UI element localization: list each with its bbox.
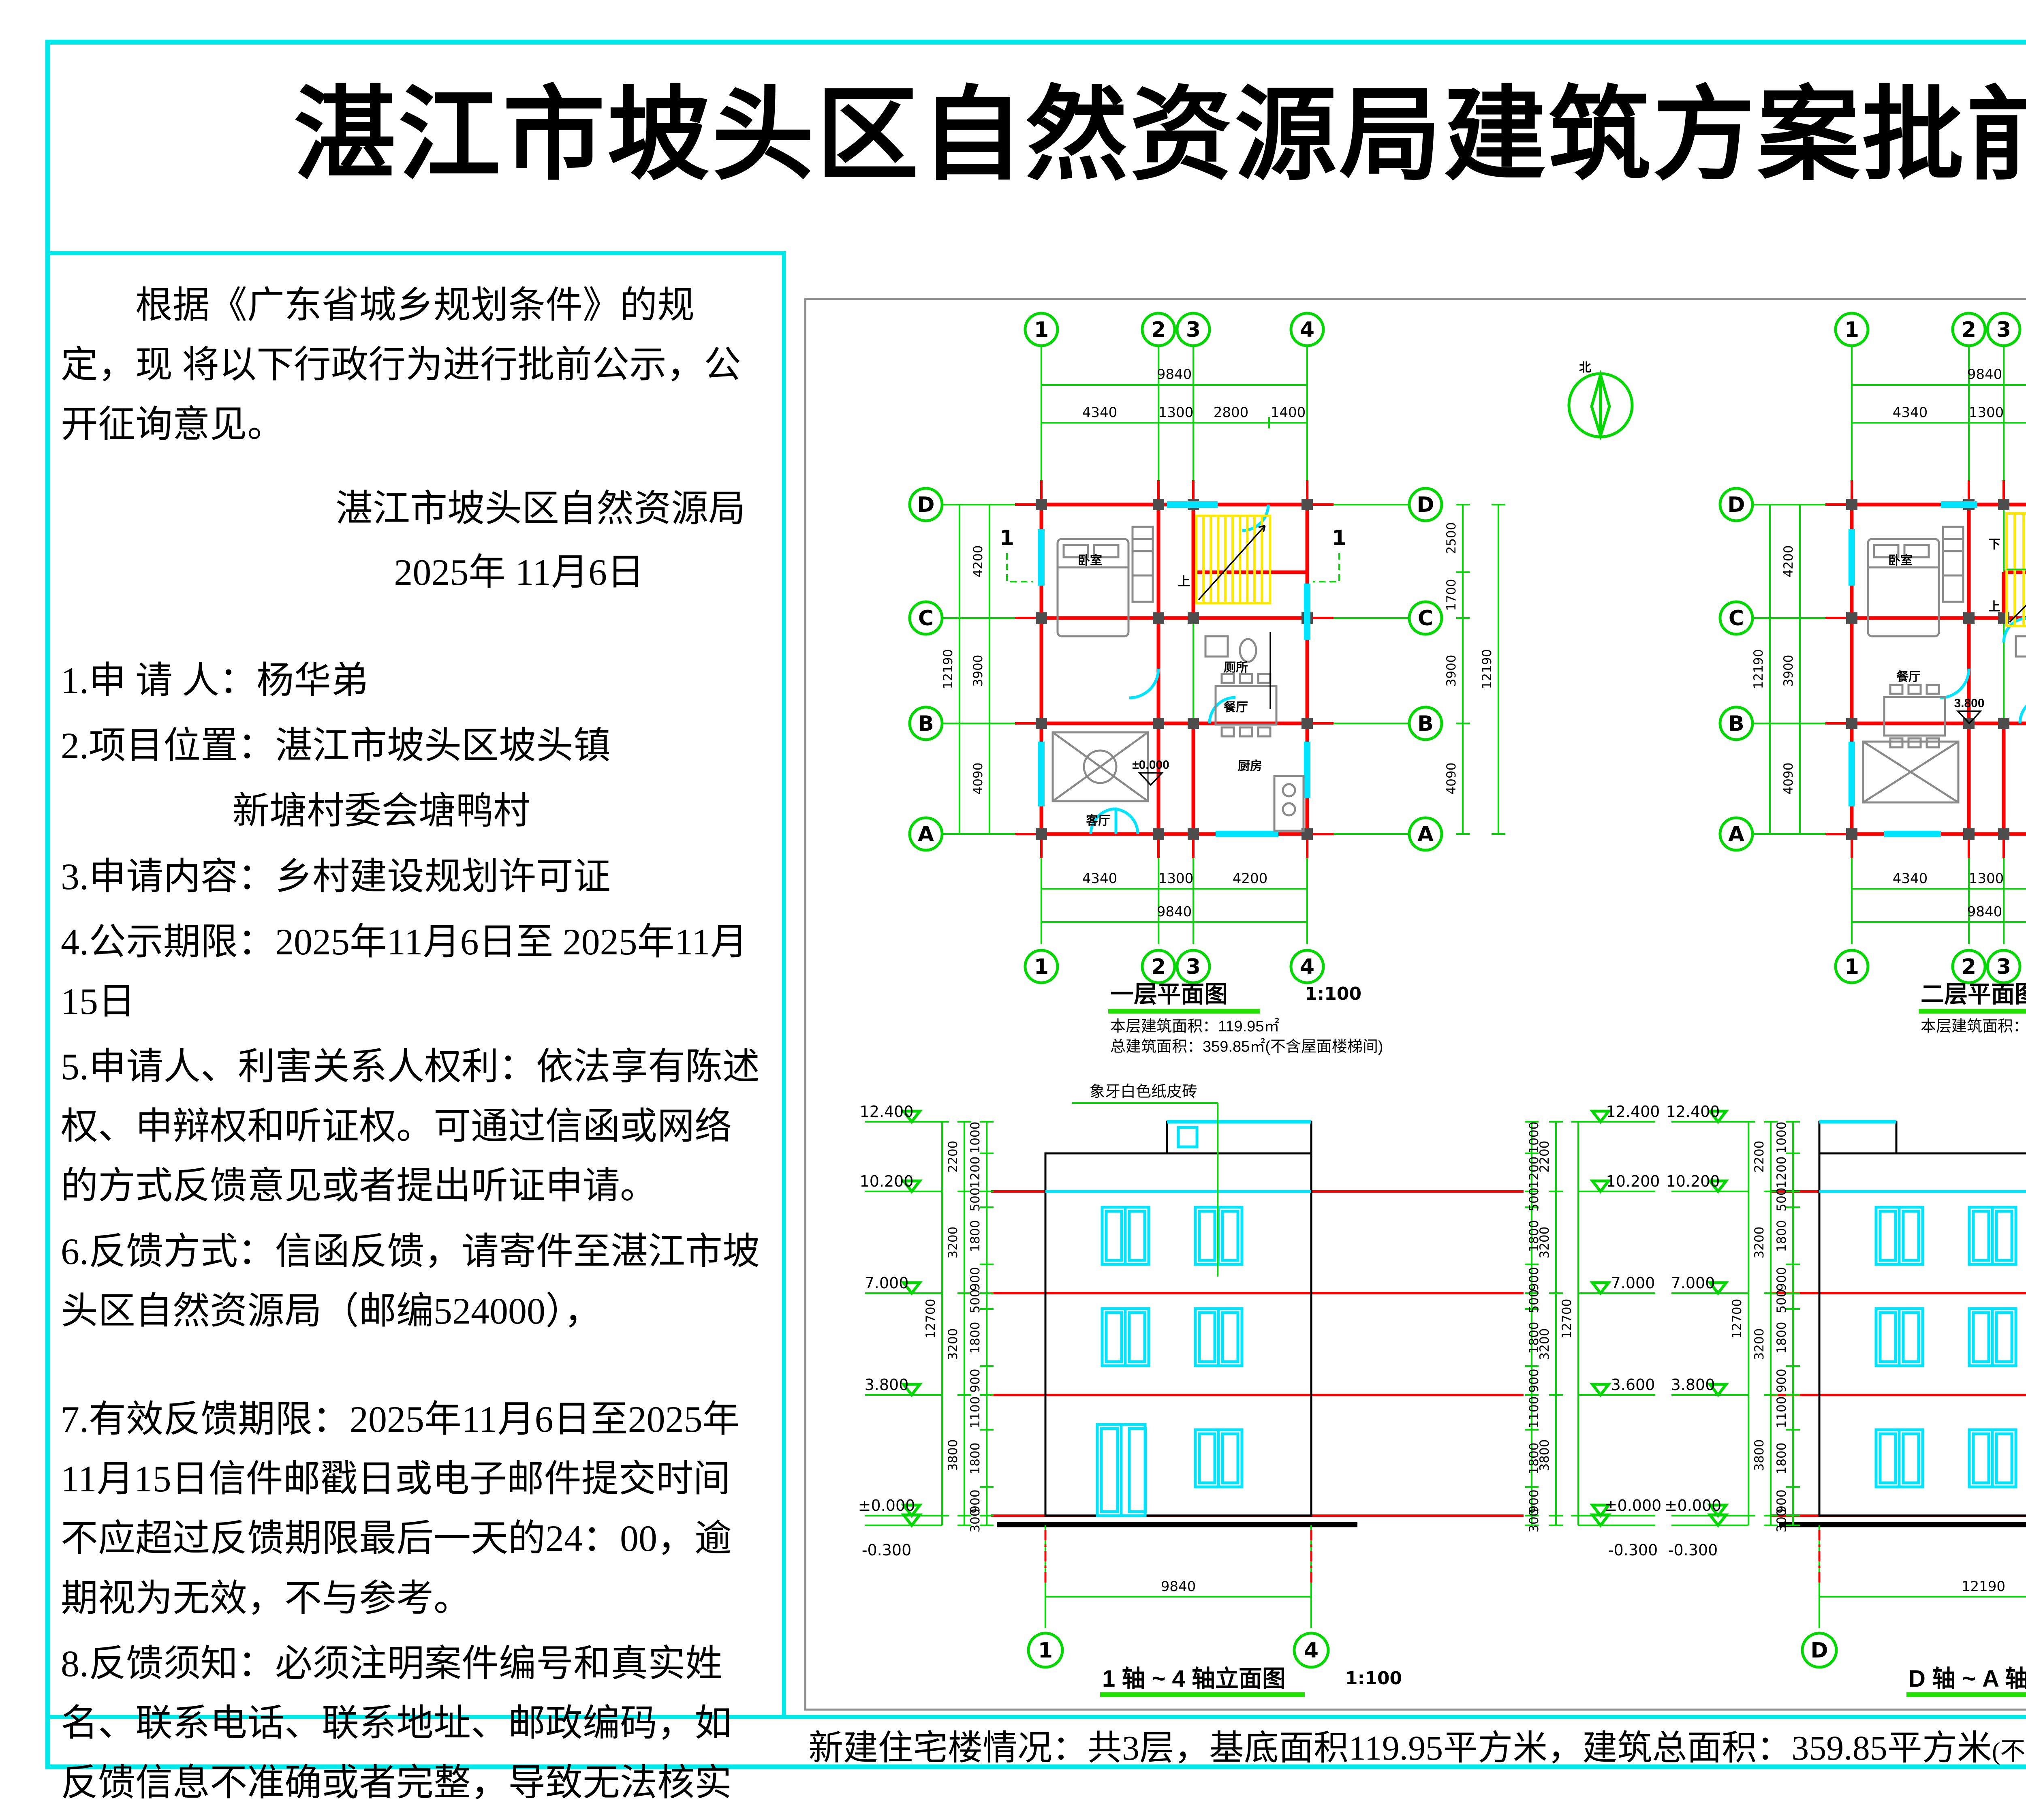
svg-text:3800: 3800 [1537,1439,1552,1471]
svg-text:-0.300: -0.300 [1668,1541,1718,1559]
svg-text:北: 北 [1579,361,1591,374]
floor-plan-2: 9840 4340 1300 4200 4340 1300 4200 9840 … [1641,302,2026,1056]
svg-text:上: 上 [1178,575,1190,588]
notice-item: 1.申 请 人：杨华弟 [61,651,766,710]
svg-text:±0.000: ±0.000 [1665,1497,1722,1514]
svg-text:2: 2 [1151,318,1166,342]
svg-text:B: B [918,712,934,736]
notice-item: 6.反馈方式：信函反馈，请寄件至湛江市坡头区自然资源局（邮编524000）， [61,1222,766,1341]
svg-text:12700: 12700 [923,1299,938,1339]
svg-text:900: 900 [1774,1267,1789,1291]
svg-text:12700: 12700 [1560,1299,1574,1339]
svg-text:A: A [1728,822,1744,847]
svg-text:D: D [1727,493,1745,517]
svg-text:1100: 1100 [1774,1397,1789,1429]
svg-text:厨房: 厨房 [1238,759,1262,773]
svg-text:3: 3 [1996,318,2011,342]
svg-text:9840: 9840 [1157,904,1192,920]
svg-text:4090: 4090 [1444,763,1459,795]
svg-text:3900: 3900 [1444,655,1459,687]
svg-text:C: C [1729,606,1744,631]
svg-text:12700: 12700 [1730,1299,1744,1339]
svg-text:1800: 1800 [1774,1443,1789,1475]
svg-text:B: B [1417,712,1434,736]
floor-plan-1: 9840 4340 1300 2800 1400 4340 1300 4200 … [831,302,1669,1056]
svg-text:500: 500 [1527,1289,1541,1313]
svg-text:4340: 4340 [1893,404,1928,421]
footer-text: 新建住宅楼情况：共3层，基底面积119.95平方米，建筑总面积：359.85平方… [808,1728,1992,1767]
svg-text:10.200: 10.200 [860,1172,914,1190]
svg-text:1800: 1800 [968,1322,983,1354]
svg-text:1300: 1300 [1969,870,2004,887]
svg-text:12190: 12190 [1751,649,1766,689]
svg-text:1200: 1200 [968,1157,983,1189]
svg-text:4200: 4200 [971,545,985,577]
svg-text:3: 3 [1186,955,1201,979]
footer-paren: (不含屋面楼梯间面积) [1992,1738,2026,1765]
svg-text:7.000: 7.000 [865,1274,909,1292]
svg-text:900: 900 [968,1267,983,1291]
plan1-note1: 本层建筑面积：119.95㎡ [1110,1018,1279,1035]
svg-text:1: 1 [1038,1638,1053,1663]
svg-text:4200: 4200 [1233,870,1268,887]
notice-paragraph: 根据《广东省城乡规划条件》的规定，现 将以下行政行为进行批前公示，公开征询意见。 [61,276,766,455]
elev2-caption: D 轴 ~ A 轴立面图 [1908,1666,2026,1692]
svg-text:1200: 1200 [1774,1157,1789,1189]
svg-text:3200: 3200 [946,1227,960,1259]
svg-text:4200: 4200 [1781,545,1796,577]
columns [1036,499,1313,840]
svg-text:3200: 3200 [1752,1328,1767,1360]
svg-text:300: 300 [1774,1508,1789,1532]
svg-text:A: A [1417,822,1434,847]
svg-text:±0.000: ±0.000 [1132,758,1169,772]
svg-text:10.200: 10.200 [1666,1172,1720,1190]
plan1-note2: 总建筑面积：359.85㎡(不含屋面楼梯间) [1110,1038,1383,1055]
svg-text:3900: 3900 [971,655,985,687]
svg-text:3800: 3800 [946,1439,960,1471]
svg-text:卧室: 卧室 [1888,554,1913,567]
svg-text:3: 3 [1186,318,1201,342]
svg-text:12190: 12190 [1962,1578,2005,1595]
svg-text:1: 1 [1844,318,1859,342]
plan2-note1: 本层建筑面积：119.95㎡ [1921,1018,2026,1035]
svg-text:12190: 12190 [941,649,955,689]
svg-text:上: 上 [1988,600,2000,614]
footer-bar: 新建住宅楼情况：共3层，基底面积119.95平方米，建筑总面积：359.85平方… [808,1719,2026,1770]
svg-text:3200: 3200 [1752,1227,1767,1259]
plan2-caption: 二层平面图 [1921,981,2026,1007]
svg-text:7.000: 7.000 [1611,1274,1655,1292]
facade-windows [1876,1207,2026,1487]
svg-text:7.000: 7.000 [1671,1274,1715,1292]
plan1-caption: 一层平面图 [1110,981,1228,1007]
svg-text:1: 1 [1034,955,1049,979]
svg-text:D: D [917,493,934,517]
svg-text:D: D [1810,1638,1828,1663]
svg-text:9840: 9840 [1967,904,2002,920]
title-divider [50,251,784,255]
svg-text:1: 1 [1844,955,1859,979]
bottom-dims [1802,1525,2026,1667]
svg-text:C: C [1418,606,1433,631]
notice-item: 2.项目位置：湛江市坡头区坡头镇 [61,716,766,776]
svg-text:1700: 1700 [1444,579,1459,611]
svg-text:客厅: 客厅 [1086,814,1110,828]
svg-text:3200: 3200 [1537,1227,1552,1259]
elevation-d-a: 象牙白色纸皮砖 12.400 10.200 7.000 3.800 ±0.000… [1649,1058,2026,1698]
svg-text:1800: 1800 [1774,1220,1789,1252]
svg-text:4: 4 [1300,955,1314,979]
svg-text:卧室: 卧室 [1078,554,1102,567]
svg-text:C: C [918,606,934,631]
north-compass-icon: 北 [1569,361,1632,437]
svg-text:4: 4 [1304,1638,1319,1663]
svg-text:12190: 12190 [1480,649,1494,689]
svg-text:2: 2 [1151,955,1166,979]
svg-text:500: 500 [1527,1187,1541,1211]
svg-text:12.400: 12.400 [860,1103,914,1121]
notice-item: 3.申请内容：乡村建设规划许可证 [61,847,766,907]
stair [2007,513,2026,626]
svg-text:1:100: 1:100 [1305,984,1361,1004]
notice-panel: 根据《广东省城乡规划条件》的规定，现 将以下行政行为进行批前公示，公开征询意见。… [61,276,766,1820]
finish-annotation: 象牙白色纸皮砖 [1090,1082,1197,1100]
svg-text:1100: 1100 [968,1397,983,1429]
svg-text:2200: 2200 [1537,1141,1552,1173]
svg-text:3900: 3900 [1781,655,1796,687]
svg-text:900: 900 [968,1369,983,1392]
svg-text:1800: 1800 [968,1443,983,1475]
svg-text:餐厅: 餐厅 [1224,701,1248,714]
facade-windows [1097,1207,1242,1516]
svg-text:1800: 1800 [1774,1322,1789,1354]
svg-text:2200: 2200 [946,1141,960,1173]
svg-text:300: 300 [1527,1508,1541,1532]
svg-text:A: A [918,822,934,847]
page-title: 湛江市坡头区自然资源局建筑方案批前公示 [0,52,2026,200]
notice-item: 7.有效反馈期限：2025年11月6日至2025年11月15日信件邮戳日或电子邮… [61,1390,766,1628]
svg-text:4090: 4090 [1781,763,1796,795]
svg-text:餐厅: 餐厅 [1896,670,1921,684]
svg-text:1: 1 [1332,526,1346,550]
svg-text:1000: 1000 [968,1122,983,1154]
svg-text:2500: 2500 [1444,522,1459,554]
svg-text:3200: 3200 [946,1328,960,1360]
svg-text:厕所: 厕所 [1224,661,1248,674]
svg-text:3800: 3800 [1752,1439,1767,1471]
svg-text:900: 900 [1527,1369,1541,1392]
svg-text:4340: 4340 [1082,404,1118,421]
svg-text:B: B [1728,712,1744,736]
svg-text:下: 下 [1988,538,2000,551]
svg-text:4: 4 [1300,318,1314,342]
notice-item: 8.反馈须知：必须注明案件编号和真实姓名、联系电话、联系地址、邮政编码，如反馈信… [61,1634,766,1820]
svg-text:3.800: 3.800 [865,1376,909,1394]
stair [1196,516,1270,603]
svg-text:4340: 4340 [1082,870,1118,887]
svg-text:1:100: 1:100 [1345,1668,1402,1689]
svg-text:500: 500 [1774,1289,1789,1313]
building-outline [997,1122,1357,1525]
svg-text:9840: 9840 [1967,366,2002,383]
svg-text:2: 2 [1962,318,1976,342]
svg-text:D: D [1417,493,1434,517]
bottom-dims [1028,1525,1328,1667]
public-notice-page: 湛江市坡头区自然资源局建筑方案批前公示 根据《广东省城乡规划条件》的规定，现 将… [0,0,2026,1820]
notice-date: 2025年 11月6日 [61,543,766,602]
svg-text:1300: 1300 [1969,404,2004,421]
svg-text:900: 900 [1774,1369,1789,1392]
elev1-caption: 1 轴 ~ 4 轴立面图 [1102,1666,1286,1692]
svg-text:12.400: 12.400 [1666,1103,1720,1121]
svg-text:1300: 1300 [1158,870,1194,887]
svg-text:300: 300 [968,1508,983,1532]
svg-text:500: 500 [968,1289,983,1313]
notice-item: 新塘村委会塘鸭村 [61,781,766,841]
svg-text:2: 2 [1962,955,1976,979]
svg-text:1400: 1400 [1271,404,1306,421]
svg-text:9840: 9840 [1157,366,1192,383]
svg-text:±0.000: ±0.000 [858,1497,915,1514]
svg-text:4090: 4090 [971,763,985,795]
svg-text:-0.300: -0.300 [862,1541,912,1559]
panel-divider [782,251,786,1717]
svg-text:3.800: 3.800 [1671,1376,1715,1394]
svg-text:1300: 1300 [1158,404,1194,421]
svg-text:1800: 1800 [968,1220,983,1252]
svg-text:4340: 4340 [1893,870,1928,887]
svg-text:3200: 3200 [1537,1328,1552,1360]
elevation-1-4: 象牙白色纸皮砖 12.400 10.200 7.000 3.800 ±0.000… [843,1058,1669,1698]
svg-text:3.800: 3.800 [1954,697,1984,710]
svg-text:1000: 1000 [1774,1122,1789,1154]
svg-text:1: 1 [1034,318,1049,342]
notice-item: 5.申请人、利害关系人权利：依法享有陈述权、申辩权和听证权。可通过信函或网络的方… [61,1037,766,1216]
notice-item: 4.公示期限：2025年11月6日至 2025年11月 15日 [61,912,766,1031]
svg-text:9840: 9840 [1161,1578,1196,1595]
svg-text:2800: 2800 [1214,404,1249,421]
svg-text:1100: 1100 [1527,1397,1541,1429]
svg-text:3.600: 3.600 [1611,1376,1655,1394]
svg-text:500: 500 [1774,1187,1789,1211]
svg-text:500: 500 [968,1187,983,1211]
svg-text:2200: 2200 [1752,1141,1767,1173]
svg-text:900: 900 [1527,1267,1541,1291]
furniture [1863,527,2026,817]
svg-text:3: 3 [1996,955,2011,979]
notice-org: 湛江市坡头区自然资源局 [61,479,766,539]
svg-text:1: 1 [1000,526,1014,550]
